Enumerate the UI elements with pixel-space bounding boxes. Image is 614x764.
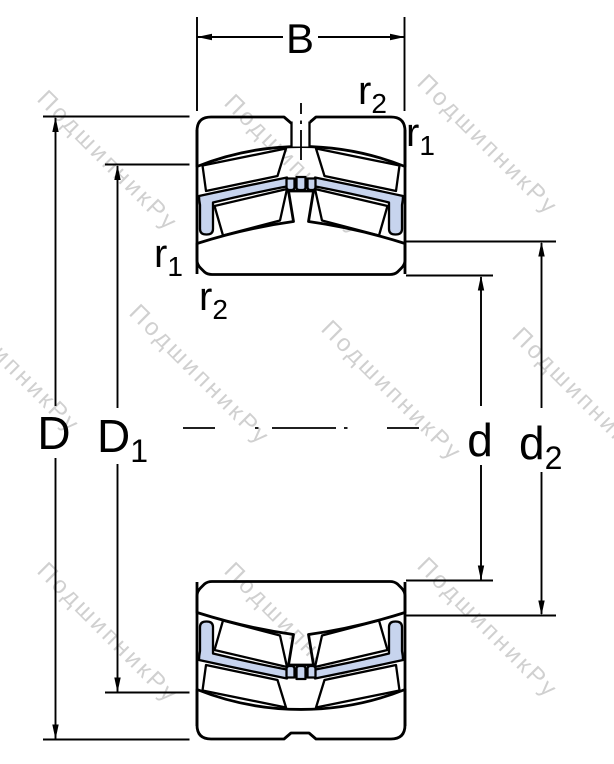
label-D1-main: D [97, 410, 130, 462]
label-r1-main: r [406, 111, 419, 155]
arrow-up-icon [478, 276, 484, 291]
label-d2-main: d [519, 417, 545, 469]
label-r2-sub: 2 [212, 294, 228, 325]
bearing-top-section [197, 103, 405, 275]
arrow-down-icon [478, 566, 484, 581]
label-r2-main: r [199, 275, 212, 319]
label-r1-sub: 1 [167, 251, 183, 282]
label-d2: d2 [519, 417, 562, 476]
arrow-right-icon [390, 34, 405, 40]
label-r2-top: r2 [358, 69, 387, 119]
bearing-drawing-page: ПодшипникРу ПодшипникРу ПодшипникРу Подш… [0, 0, 614, 764]
label-d: d [467, 414, 493, 466]
label-r1-sub: 1 [419, 130, 435, 161]
watermark-text-span: ПодшипникРу [316, 315, 468, 467]
label-d2-sub: 2 [545, 440, 563, 476]
watermark-text: ПодшипникРу [316, 315, 468, 467]
label-r1-top: r1 [406, 111, 435, 161]
arrow-down-icon [52, 725, 58, 740]
arrow-down-icon [538, 601, 544, 616]
label-r1-main: r [154, 232, 167, 276]
bearing-cross-section-drawing: ПодшипникРу ПодшипникРу ПодшипникРу Подш… [0, 0, 614, 764]
arrow-left-icon [197, 34, 212, 40]
label-D: D [37, 407, 70, 459]
label-r2-left: r2 [199, 275, 228, 325]
label-D1: D1 [97, 410, 148, 469]
arrow-down-icon [114, 678, 120, 693]
label-D1-sub: 1 [130, 433, 148, 469]
label-r2-sub: 2 [371, 88, 387, 119]
bearing-bottom-section [197, 582, 405, 740]
label-r1-left: r1 [154, 232, 183, 282]
label-B: B [286, 15, 314, 62]
label-r2-main: r [358, 69, 371, 113]
arrow-up-icon [538, 242, 544, 257]
dimension-D1: D1 [97, 165, 190, 693]
watermark-layer: ПодшипникРу ПодшипникРу ПодшипникРу Подш… [0, 69, 614, 709]
